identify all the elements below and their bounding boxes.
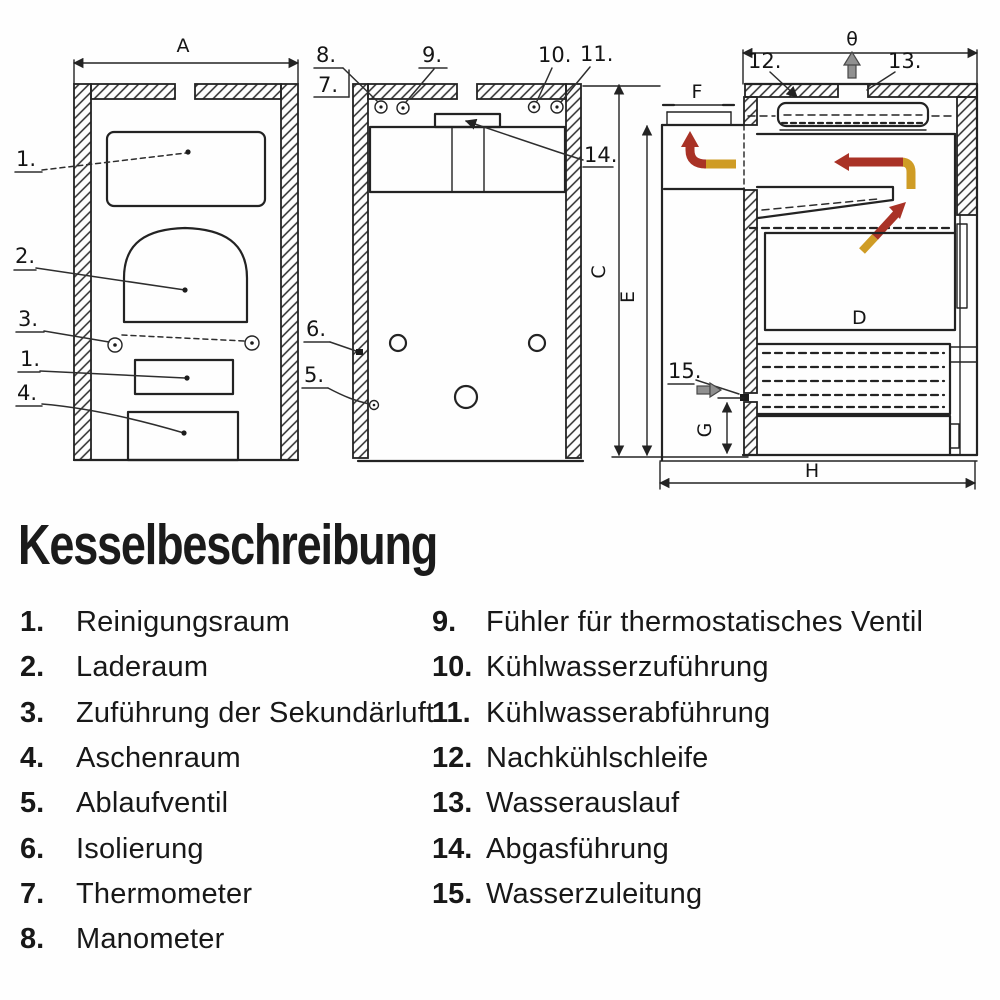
flue-exit-arrow — [681, 131, 736, 164]
callout-10: 10. — [538, 43, 571, 67]
door-profile — [957, 224, 967, 308]
front-right-wall — [281, 84, 298, 460]
item-label: Abgasführung — [486, 833, 669, 866]
side-left-wall-top — [744, 97, 757, 125]
legend-item-4: 4.Aschenraum — [20, 736, 434, 781]
water-outlet-arrow — [844, 52, 860, 78]
legend-item-14: 14.Abgasführung — [432, 826, 923, 871]
callout-1-top-leader — [42, 153, 186, 170]
callout-1-top: 1. — [16, 147, 36, 171]
callout-9: 9. — [422, 43, 442, 67]
dim-b-label: θ — [846, 28, 858, 50]
callout-4-leader — [42, 404, 184, 433]
legend-item-9: 9.Fühler für thermostatisches Ventil — [432, 600, 923, 645]
callout-6: 6. — [306, 317, 326, 341]
side-top-wall-left — [745, 84, 838, 97]
legend-item-11: 11.Kühlwasserabführung — [432, 691, 923, 736]
callout-14: 14. — [584, 143, 617, 167]
callout-12: 12. — [748, 49, 781, 73]
page-title: Kesselbeschreibung — [18, 512, 437, 578]
legend-item-6: 6.Isolierung — [20, 826, 434, 871]
item-label: Isolierung — [76, 833, 204, 866]
side-left-wall — [744, 190, 757, 393]
dim-c-label: C — [588, 265, 610, 278]
dim-f-label: F — [692, 81, 703, 103]
rear-right-wall — [566, 84, 581, 458]
item-number: 7. — [20, 878, 76, 911]
item-label: Reinigungsraum — [76, 606, 290, 639]
legend-item-13: 13.Wasserauslauf — [432, 781, 923, 826]
item-label: Aschenraum — [76, 742, 241, 775]
legend-item-7: 7.Thermometer — [20, 872, 434, 917]
item-number: 4. — [20, 742, 76, 775]
item-number: 2. — [20, 651, 76, 684]
side-top-wall-right — [868, 84, 977, 97]
item-label: Laderaum — [76, 651, 208, 684]
flue-housing — [370, 127, 565, 192]
grate-section — [758, 344, 950, 414]
item-number: 14. — [432, 833, 486, 866]
item-number: 11. — [432, 697, 486, 730]
rear-top-wall-left — [368, 84, 457, 99]
legend-item-1: 1.Reinigungsraum — [20, 600, 434, 645]
legend-item-8: 8.Manometer — [20, 917, 434, 962]
legend-item-15: 15.Wasserzuleitung — [432, 872, 923, 917]
side-left-wall-bottom — [744, 402, 757, 455]
item-number: 15. — [432, 878, 486, 911]
item-label: Thermometer — [76, 878, 252, 911]
legend-item-2: 2.Laderaum — [20, 645, 434, 690]
item-label: Fühler für thermostatisches Ventil — [486, 606, 923, 639]
callout-11: 11. — [580, 42, 613, 66]
callout-1-mid-leader — [40, 371, 185, 378]
ash-chamber — [758, 416, 950, 455]
item-label: Kühlwasserabführung — [486, 697, 770, 730]
side-right-wall-top — [957, 97, 977, 215]
legend-item-12: 12.Nachkühlschleife — [432, 736, 923, 781]
item-label: Ablaufventil — [76, 787, 228, 820]
item-number: 8. — [20, 923, 76, 956]
callout-2: 2. — [15, 244, 35, 268]
rear-view: 8. 7. 9. 10. 11. 14. 6. 5. — [302, 42, 617, 461]
item-label: Nachkühlschleife — [486, 742, 708, 775]
item-label: Wasserzuleitung — [486, 878, 702, 911]
legend-item-10: 10.Kühlwasserzuführung — [432, 645, 923, 690]
dim-h-label: H — [805, 460, 819, 482]
item-label: Zuführung der Sekundärluft — [76, 697, 434, 730]
legend-column-left: 1.Reinigungsraum 2.Laderaum 3.Zuführung … — [20, 600, 434, 962]
front-top-wall-left — [91, 84, 175, 99]
front-view: A 1. 2. 3. — [14, 35, 298, 460]
front-top-wall-right — [195, 84, 281, 99]
item-number: 9. — [432, 606, 486, 639]
legend-item-3: 3.Zuführung der Sekundärluft — [20, 691, 434, 736]
rear-port-center — [455, 386, 477, 408]
ash-chamber-door — [128, 412, 238, 460]
boiler-manual-page: A 1. 2. 3. — [0, 0, 1000, 1000]
loading-chamber-door — [124, 228, 247, 322]
item-number: 3. — [20, 697, 76, 730]
side-view: θ 12. 13. — [583, 28, 977, 489]
baffle-plate — [757, 187, 893, 218]
item-number: 12. — [432, 742, 486, 775]
dim-e-label: E — [617, 291, 639, 303]
dim-g-label: G — [694, 423, 716, 438]
callout-5: 5. — [304, 363, 324, 387]
item-label: Wasserauslauf — [486, 787, 679, 820]
callout-3: 3. — [18, 307, 38, 331]
item-number: 5. — [20, 787, 76, 820]
boiler-technical-drawing: A 1. 2. 3. — [0, 0, 1000, 500]
item-number: 10. — [432, 651, 486, 684]
item-label: Kühlwasserzuführung — [486, 651, 769, 684]
callout-13: 13. — [888, 49, 921, 73]
grate-tab — [950, 347, 977, 362]
rear-port-right — [529, 335, 545, 351]
item-number: 6. — [20, 833, 76, 866]
callout-4: 4. — [17, 381, 37, 405]
rear-port-left — [390, 335, 406, 351]
front-left-wall — [74, 84, 91, 460]
cleaning-chamber-door — [107, 132, 265, 206]
item-number: 1. — [20, 606, 76, 639]
hot-gas-arrow-diagonal — [862, 202, 906, 251]
callout-1-mid: 1. — [20, 347, 40, 371]
legend-column-right: 9.Fühler für thermostatisches Ventil 10.… — [432, 600, 923, 917]
dim-d-label: D — [852, 307, 867, 329]
legend-item-5: 5.Ablaufventil — [20, 781, 434, 826]
flue-stub — [435, 114, 500, 127]
water-inlet-arrow — [697, 383, 721, 397]
callout-8: 8. — [316, 43, 336, 67]
callout-2-leader — [36, 268, 185, 290]
item-label: Manometer — [76, 923, 224, 956]
item-number: 13. — [432, 787, 486, 820]
callout-7: 7. — [318, 73, 338, 97]
dim-a-label: A — [177, 35, 190, 57]
hot-gas-arrow-horizontal — [834, 153, 911, 189]
rear-top-wall-right — [477, 84, 566, 99]
